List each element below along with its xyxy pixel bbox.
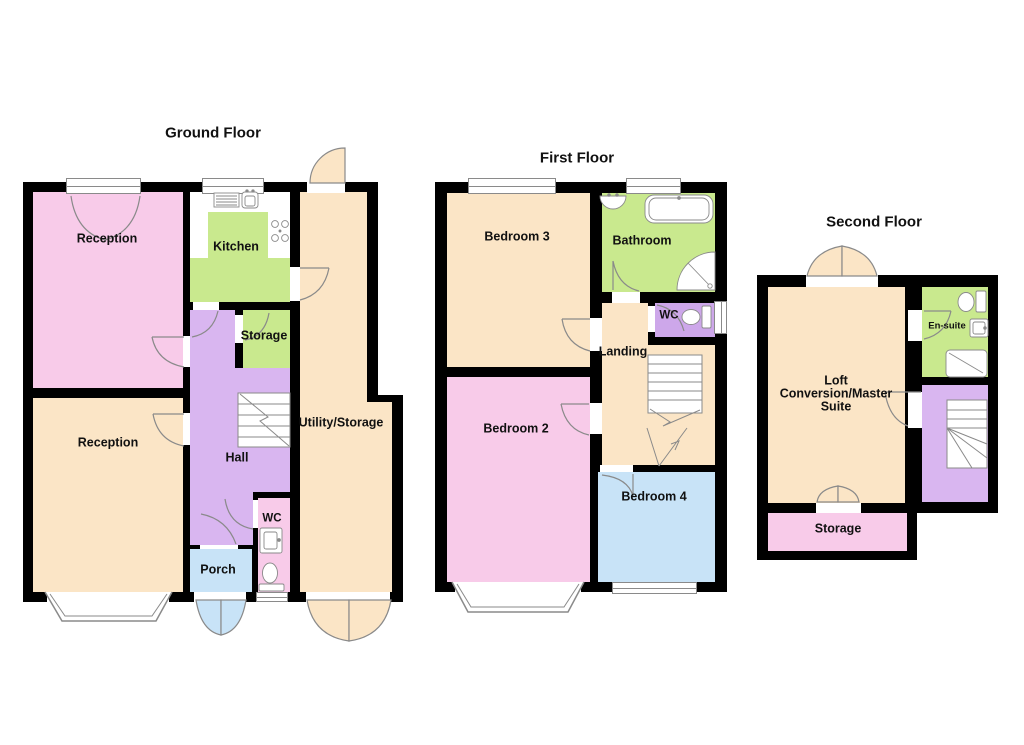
room-label-bedroom-3: Bedroom 3 [484, 231, 549, 244]
door-opening [193, 302, 219, 310]
room-bedroom-2 [447, 377, 590, 582]
room-label-kitchen: Kitchen [213, 241, 259, 254]
door-opening [612, 292, 640, 303]
door-opening [600, 465, 633, 472]
door-opening [306, 592, 390, 602]
room-landing-left [602, 303, 648, 465]
room-hall-lower [190, 492, 253, 545]
door-opening [908, 392, 922, 428]
door-leaf [221, 600, 246, 635]
floor-title-first: First Floor [540, 152, 614, 165]
floor-title-second: Second Floor [826, 216, 922, 229]
room-reception-1 [33, 192, 183, 388]
room-utility-upper [300, 192, 367, 402]
window-wc-ff [714, 301, 727, 334]
room-label-reception-1: Reception [77, 233, 137, 246]
room-label-ensuite: En-suite [928, 320, 965, 333]
floorplan-canvas: Ground Floor First Floor Second Floor Re… [0, 0, 1024, 745]
window-reception1 [66, 178, 141, 194]
door-opening [307, 182, 345, 193]
door-opening [816, 503, 861, 513]
room-label-landing: Landing [599, 346, 648, 359]
door-opening [253, 500, 258, 528]
door-opening [648, 306, 655, 332]
room-label-utility: Utility/Storage [299, 417, 384, 430]
room-label-bedroom-2: Bedroom 2 [483, 423, 548, 436]
window-bedroom3 [468, 178, 556, 194]
room-label-porch: Porch [200, 564, 235, 577]
window-wc-gf [256, 592, 288, 602]
room-label-hall: Hall [226, 452, 249, 465]
room-landing-right [648, 345, 715, 465]
room-reception-2 [33, 398, 183, 592]
room-label-wc-ff: WC [659, 310, 678, 323]
room-hall-upper [190, 310, 235, 368]
door-leaf [842, 246, 877, 276]
door-leaf [196, 600, 221, 635]
room-kitchen-lower [190, 258, 290, 302]
room-hall-mid [190, 368, 290, 492]
door-opening [194, 592, 246, 602]
room-label-storage-sf: Storage [815, 523, 862, 536]
window-bathroom [626, 178, 681, 194]
door-leaf [307, 600, 349, 641]
room-bedroom-3 [447, 193, 590, 367]
room-utility-lower [300, 402, 392, 592]
room-label-wc-gf: WC [262, 513, 281, 526]
door-opening [290, 267, 300, 301]
room-label-reception-2: Reception [78, 437, 138, 450]
door-leaf [310, 148, 345, 183]
door-opening [908, 310, 922, 341]
window-bedroom4 [612, 582, 697, 594]
door-opening [200, 545, 238, 549]
door-opening [183, 336, 190, 367]
window-kitchen [202, 178, 264, 194]
door-opening [183, 413, 190, 445]
room-label-loft: Loft Conversion/Master Suite [780, 375, 893, 414]
room-label-loft-line3: Suite [780, 401, 893, 414]
door-leaf [807, 246, 842, 276]
room-stairwell-sf [922, 385, 988, 502]
door-opening [590, 403, 602, 434]
room-label-bathroom: Bathroom [612, 235, 671, 248]
room-label-bedroom-4: Bedroom 4 [621, 491, 686, 504]
door-opening [806, 275, 878, 287]
floor-title-ground: Ground Floor [165, 127, 261, 140]
room-bedroom-4 [598, 472, 715, 582]
door-leaf [349, 600, 391, 641]
room-label-storage-gf: Storage [241, 330, 288, 343]
